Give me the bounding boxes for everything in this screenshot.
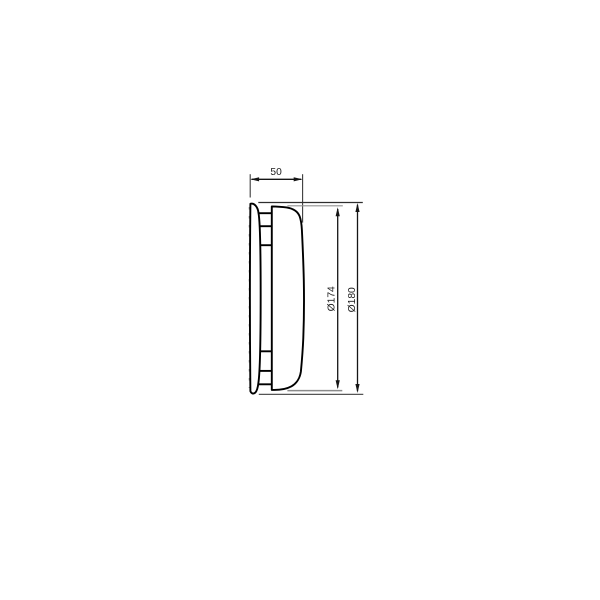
- svg-text:Ø174: Ø174: [326, 286, 337, 311]
- svg-text:50: 50: [270, 167, 282, 178]
- svg-text:Ø180: Ø180: [347, 287, 358, 312]
